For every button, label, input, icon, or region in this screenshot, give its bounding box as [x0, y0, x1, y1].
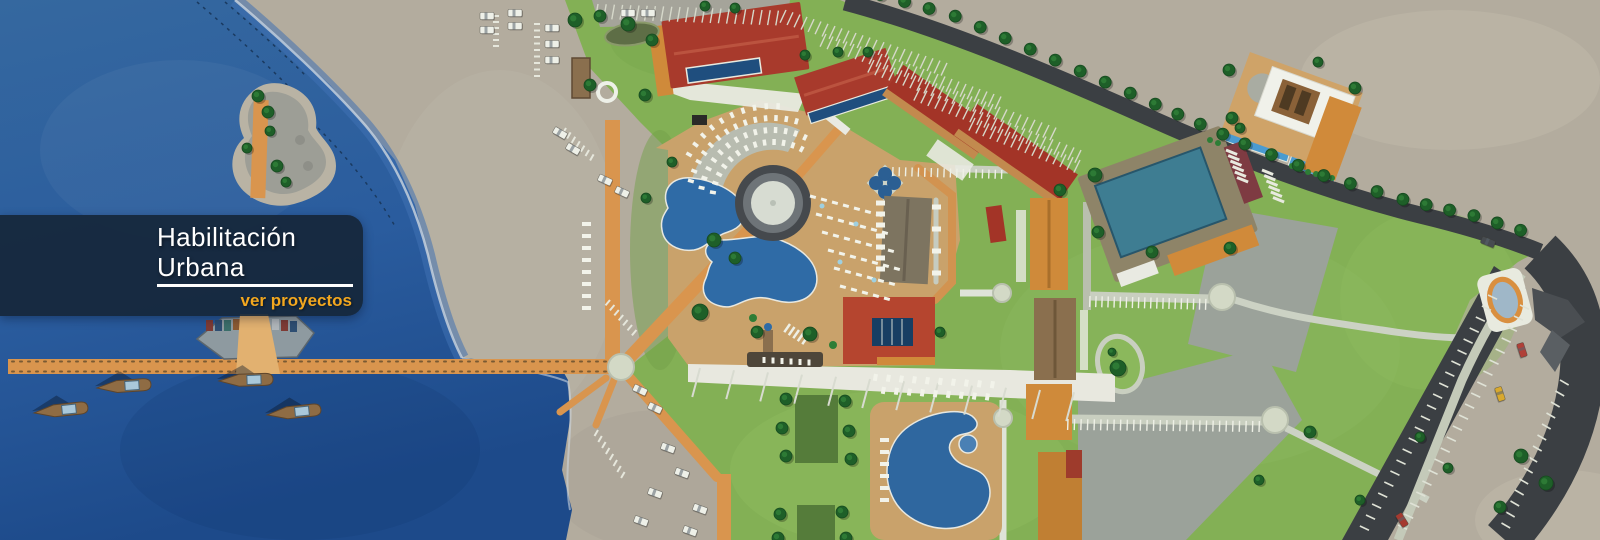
project-banner-card: Habilitación Urbana ver proyectos: [0, 215, 363, 316]
spa-circle: [959, 435, 977, 453]
lookout-tower: [572, 58, 590, 98]
pool-bar: [747, 352, 823, 367]
banner-divider: [157, 284, 353, 287]
hero-banner: Habilitación Urbana ver proyectos: [0, 0, 1600, 540]
spa-building: [843, 297, 935, 365]
banner-title: Habilitación Urbana: [157, 222, 296, 282]
view-projects-link[interactable]: ver proyectos: [241, 291, 353, 311]
central-plaza: [735, 165, 811, 241]
beach-club: [880, 196, 932, 284]
